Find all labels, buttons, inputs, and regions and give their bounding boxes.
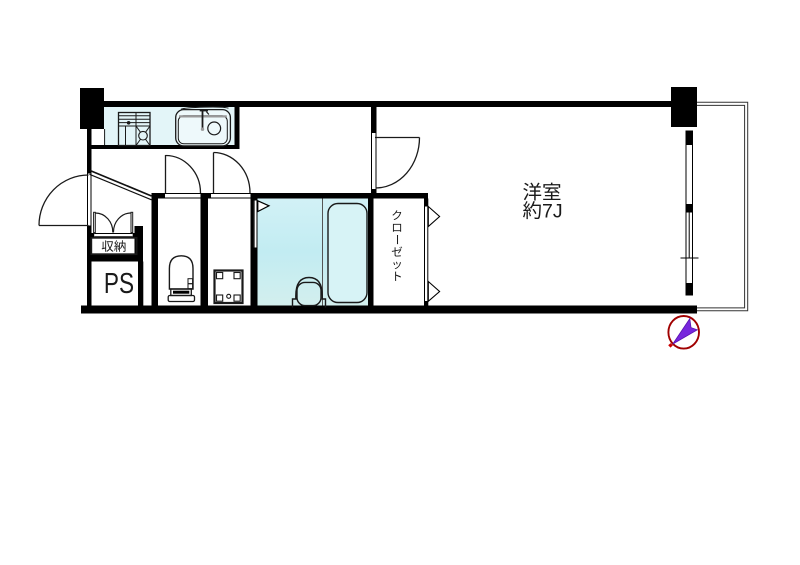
svg-text:7J: 7J [542, 201, 563, 223]
svg-text:PS: PS [104, 266, 134, 299]
